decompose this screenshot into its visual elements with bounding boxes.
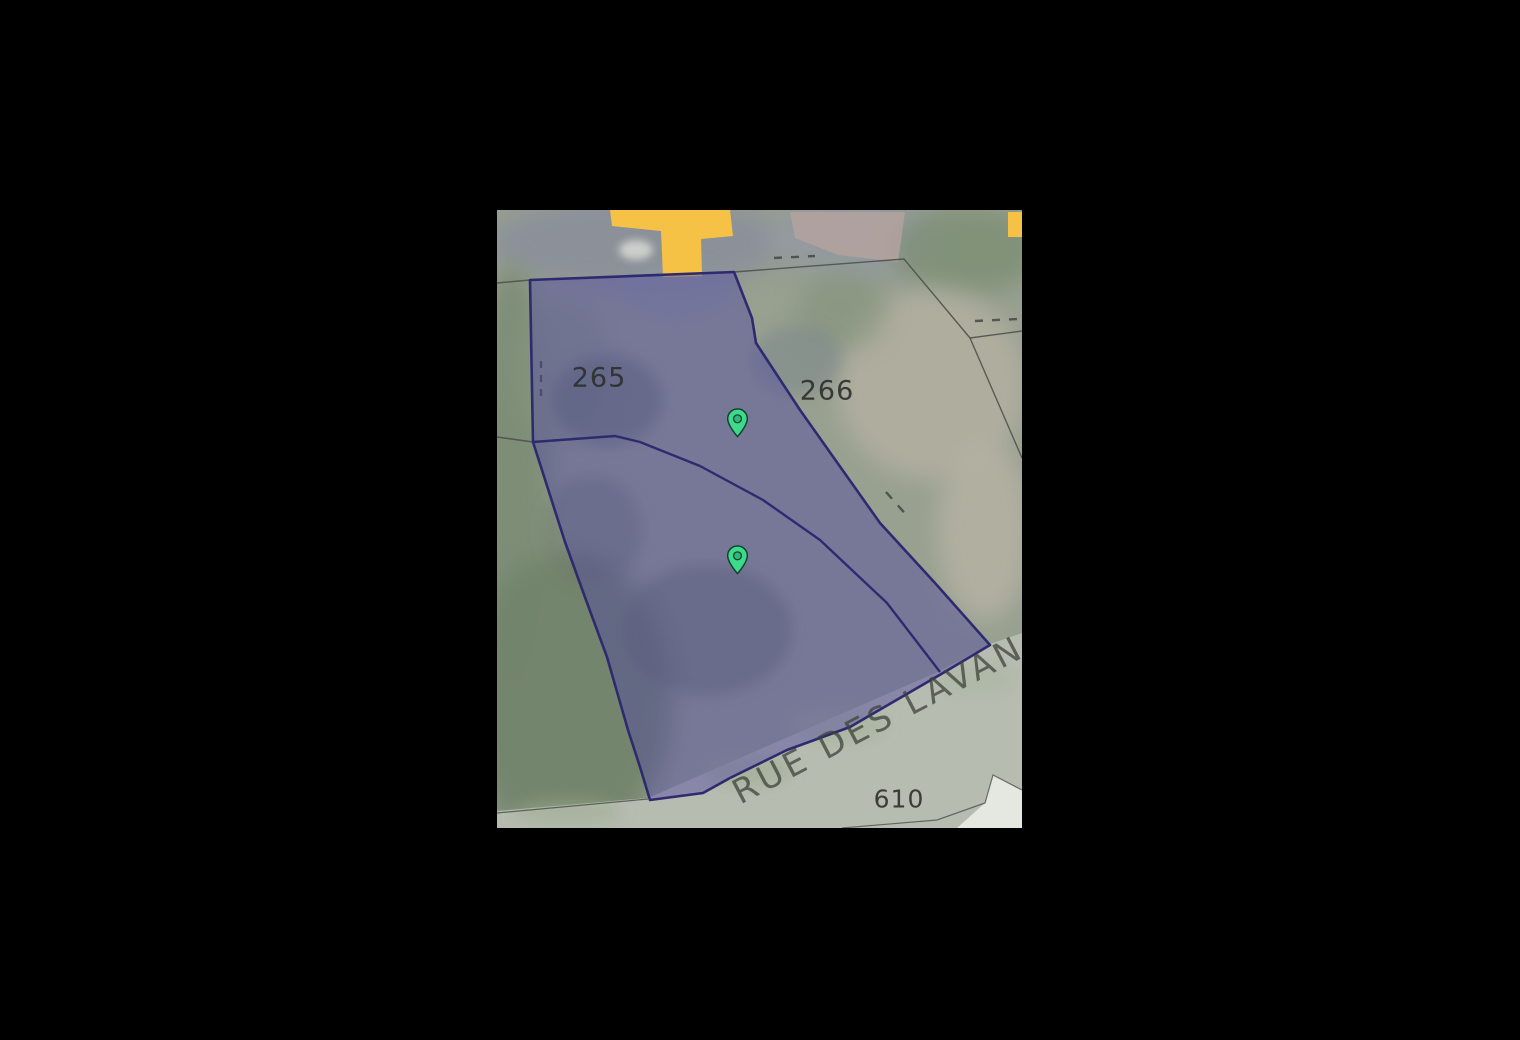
parcel-boundary-line [734,259,970,338]
parcel-boundary-line [497,437,533,442]
highlighted-road [610,210,733,277]
parcel-boundary-dashed [975,319,1018,321]
highlighted-road-fragment [1008,212,1022,237]
desktop-background: { "map": { "street_label": "RUE DES LAVA… [0,0,1520,1040]
location-pin[interactable] [726,408,749,438]
parcel-label-266: 266 [800,376,855,407]
parcel-boundary-line [970,338,1022,458]
parcel-boundary-dashed [886,492,909,518]
parcel-boundary-line [970,331,1022,338]
parcel-boundary-dashed [774,256,815,258]
location-pin[interactable] [726,545,749,575]
parcel-label-265: 265 [572,363,627,394]
parcel-boundary-line [497,280,530,283]
pin-hole [734,552,742,560]
parcel-label-610: 610 [874,785,925,814]
map-canvas[interactable]: 265 266 610 RUE DES LAVAN [497,210,1022,828]
building-footprint [790,212,905,262]
pin-hole [734,415,742,423]
map-overlay [497,210,1022,828]
